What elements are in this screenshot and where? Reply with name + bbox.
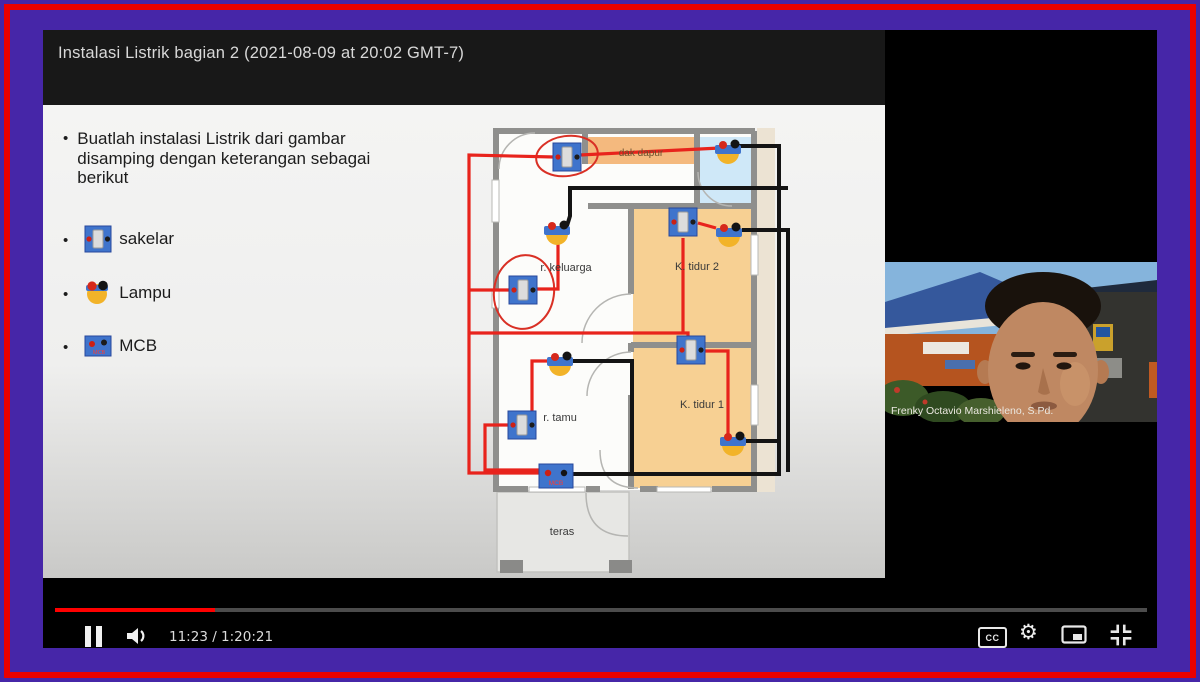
side-yard [757, 128, 775, 492]
room-label-r-keluarga: r. keluarga [540, 262, 592, 274]
presenter-face [977, 272, 1109, 422]
legend-label: sakelar [119, 229, 174, 249]
miniplayer-button[interactable] [1061, 625, 1087, 649]
presentation-slide: Buatlah instalasi Listrik dari gambar di… [43, 105, 885, 578]
lamp-icon [83, 279, 113, 307]
instruction-text: Buatlah instalasi Listrik dari gambar di… [77, 129, 415, 188]
webcam-caption: Frenky Octavio Marshieleno, S.Pd. [891, 405, 1053, 417]
mcb-icon: MCB [83, 333, 113, 359]
settings-gear-icon[interactable]: ⚙ [1019, 620, 1038, 644]
room-label-k-tidur-2: K. tidur 2 [675, 261, 719, 273]
miniplayer-icon [1061, 625, 1087, 644]
volume-button[interactable] [125, 626, 151, 651]
window-title: Instalasi Listrik bagian 2 (2021-08-09 a… [58, 44, 464, 63]
legend-label: Lampu [119, 283, 171, 303]
room-label-teras: teras [550, 526, 575, 538]
time-display: 11:23 / 1:20:21 [169, 629, 273, 645]
pause-bar [96, 626, 102, 647]
switch-icon [83, 225, 113, 253]
svg-text:MCB: MCB [93, 350, 106, 356]
video-player: Instalasi Listrik bagian 2 (2021-08-09 a… [43, 30, 1157, 648]
webcam-scene: Frenky Octavio Marshieleno, S.Pd. [885, 262, 1157, 422]
pause-button[interactable] [83, 626, 105, 647]
floorplan-diagram: MCB dak dapur K. tidur 2 r. keluarga K. … [443, 105, 885, 578]
pause-bar [85, 626, 91, 647]
svg-text:MCB: MCB [549, 480, 563, 487]
webcam-overlay: Frenky Octavio Marshieleno, S.Pd. [885, 262, 1157, 422]
legend-item-lampu: Lampu [63, 279, 171, 307]
exit-fullscreen-icon [1109, 623, 1133, 647]
mcb-symbol: MCB [539, 464, 573, 488]
shared-screen-titlebar: Instalasi Listrik bagian 2 (2021-08-09 a… [43, 30, 885, 105]
captions-label: CC [986, 633, 1000, 643]
legend-item-sakelar: sakelar [63, 225, 174, 253]
captions-button[interactable]: CC [978, 627, 1007, 648]
room-label-r-tamu: r. tamu [543, 412, 577, 424]
progress-fill [55, 608, 215, 612]
room-label-k-tidur-1: K. tidur 1 [680, 399, 724, 411]
legend-item-mcb: MCB MCB [63, 333, 157, 359]
speaker-icon [125, 626, 151, 646]
instruction-bullet: Buatlah instalasi Listrik dari gambar di… [63, 129, 415, 188]
room-label-dak-dapur: dak dapur [619, 148, 664, 159]
exit-fullscreen-button[interactable] [1109, 623, 1133, 652]
legend-label: MCB [119, 336, 157, 356]
progress-bar[interactable] [55, 608, 1147, 612]
